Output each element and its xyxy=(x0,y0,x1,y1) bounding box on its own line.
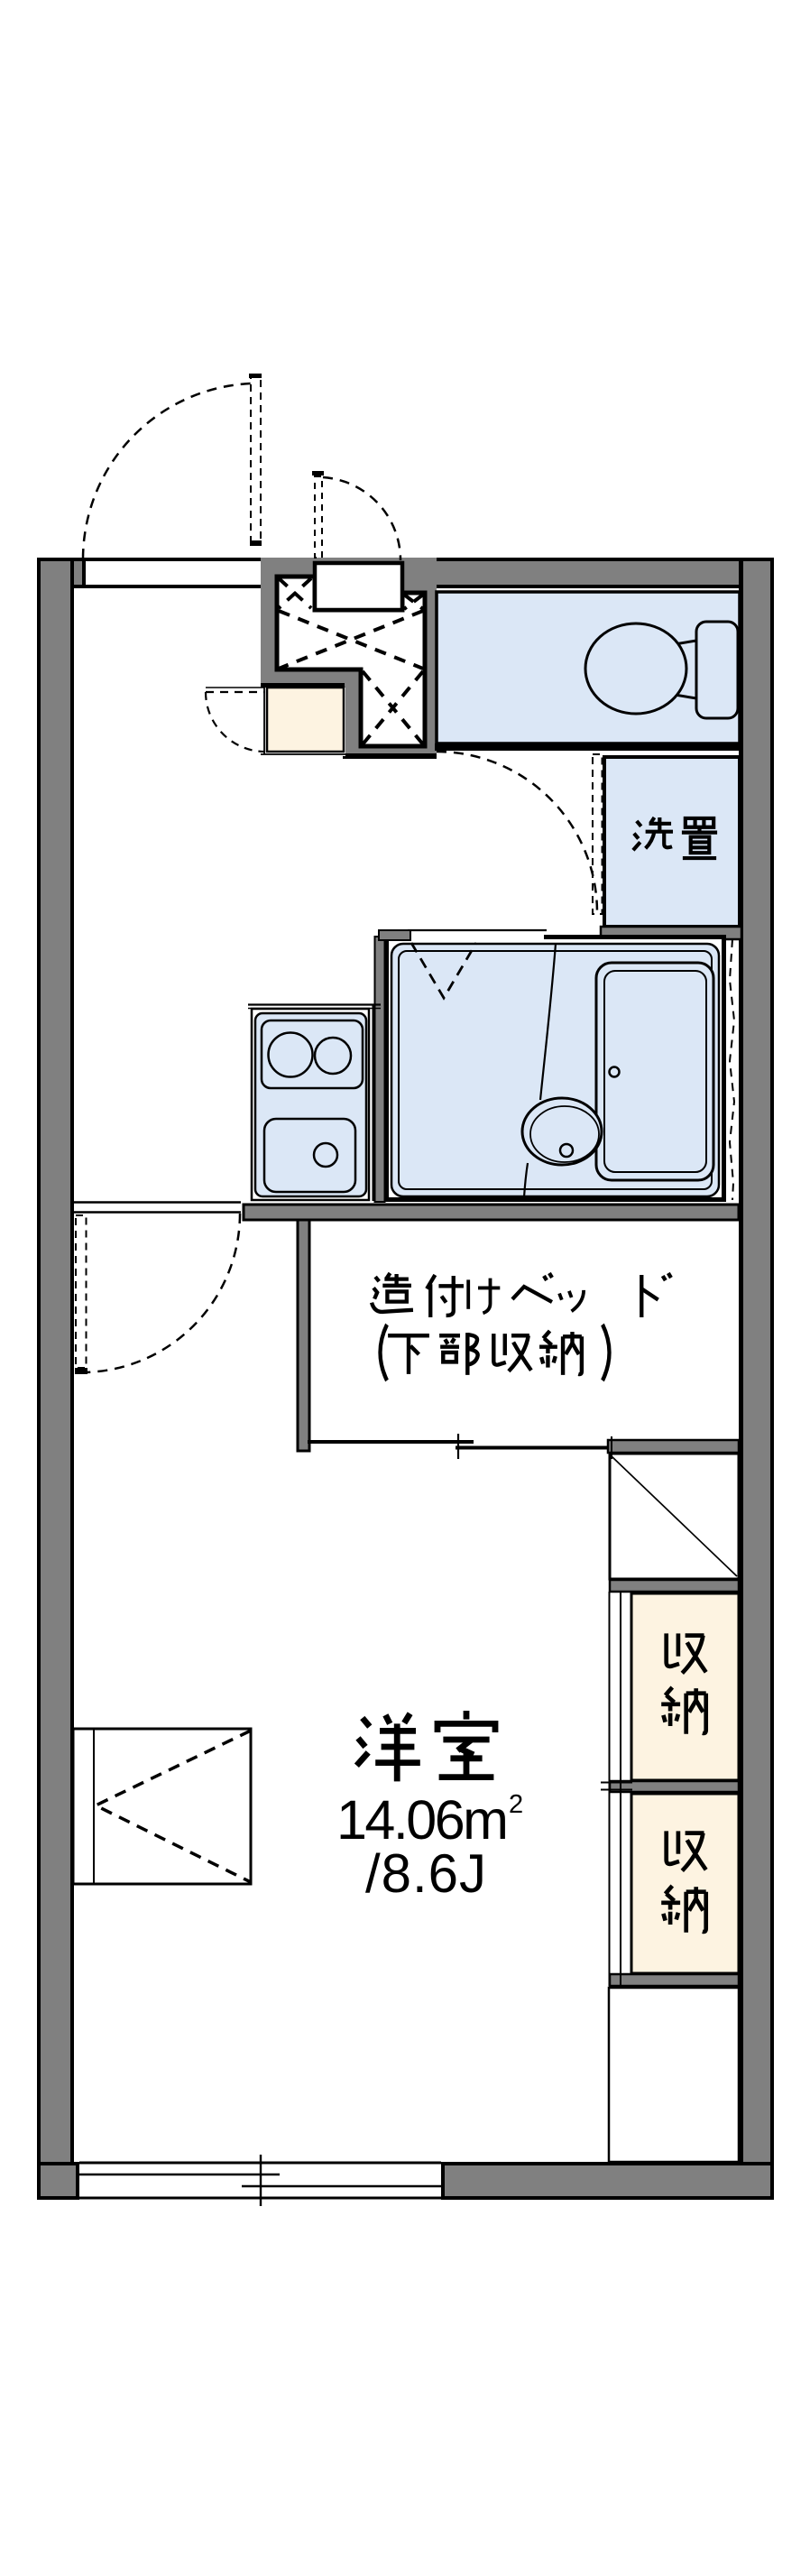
svg-text:2: 2 xyxy=(509,1790,523,1819)
svg-text:/8.6J: /8.6J xyxy=(365,1843,486,1904)
svg-text:14.06m: 14.06m xyxy=(336,1789,509,1851)
